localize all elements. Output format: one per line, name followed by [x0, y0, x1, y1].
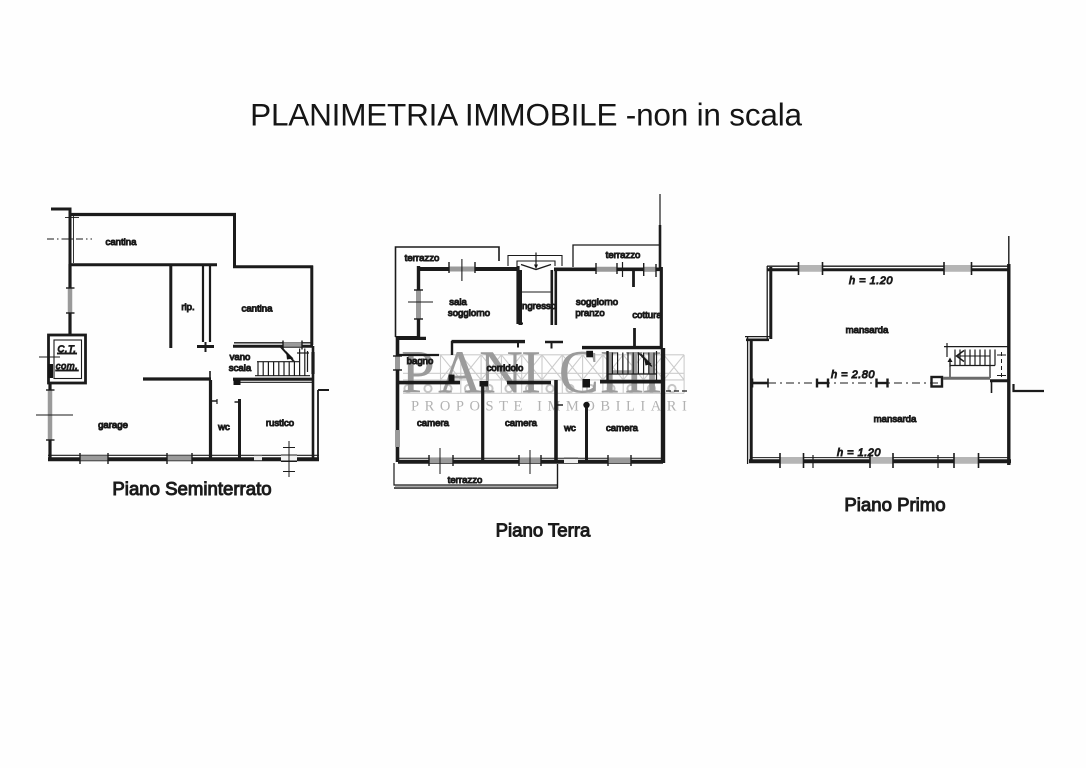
- svg-text:corridoio: corridoio: [487, 363, 524, 374]
- svg-text:A: A: [438, 340, 482, 407]
- svg-text:C: C: [559, 340, 600, 407]
- svg-text:sala: sala: [449, 297, 467, 308]
- svg-text:h = 2.80: h = 2.80: [831, 369, 875, 381]
- svg-text:P: P: [401, 340, 435, 407]
- svg-text:h = 1.20: h = 1.20: [837, 447, 881, 459]
- svg-text:rip.: rip.: [181, 302, 194, 313]
- svg-text:rustico: rustico: [266, 418, 294, 429]
- svg-text:mansarda: mansarda: [846, 325, 889, 336]
- svg-text:terrazzo: terrazzo: [405, 253, 440, 264]
- svg-text:soggiorno: soggiorno: [448, 308, 490, 319]
- svg-text:cantina: cantina: [106, 237, 138, 248]
- svg-text:vano: vano: [230, 352, 251, 363]
- svg-text:PLANIMETRIA IMMOBILE -non in s: PLANIMETRIA IMMOBILE -non in scala: [250, 97, 802, 133]
- svg-text:h = 1.20: h = 1.20: [849, 275, 893, 287]
- svg-text:camera: camera: [606, 423, 639, 434]
- svg-text:Piano Terra: Piano Terra: [496, 520, 591, 541]
- svg-text:ingresso: ingresso: [520, 301, 556, 312]
- svg-text:camera: camera: [417, 418, 450, 429]
- svg-text:I: I: [642, 340, 662, 407]
- svg-text:I: I: [521, 340, 541, 407]
- svg-text:C.T.: C.T.: [57, 344, 76, 355]
- svg-text:com.: com.: [56, 361, 79, 372]
- svg-text:Piano Seminterrato: Piano Seminterrato: [112, 478, 271, 499]
- svg-text:pranzo: pranzo: [575, 308, 604, 319]
- svg-text:soggiorno: soggiorno: [576, 297, 618, 308]
- svg-text:terrazzo: terrazzo: [448, 475, 483, 486]
- svg-text:cottura: cottura: [632, 310, 662, 321]
- svg-text:bagno: bagno: [407, 356, 434, 367]
- svg-text:camera: camera: [505, 418, 538, 429]
- svg-text:wc: wc: [563, 423, 576, 434]
- svg-text:wc: wc: [217, 422, 230, 433]
- svg-text:PROPOSTE IMMOBILIARI: PROPOSTE IMMOBILIARI: [411, 399, 692, 415]
- svg-text:cantina: cantina: [242, 304, 274, 315]
- svg-text:scala: scala: [229, 363, 252, 374]
- svg-text:Piano Primo: Piano Primo: [844, 494, 945, 515]
- svg-text:terrazzo: terrazzo: [606, 250, 641, 261]
- svg-text:mansarda: mansarda: [874, 414, 917, 425]
- svg-text:garage: garage: [98, 420, 128, 431]
